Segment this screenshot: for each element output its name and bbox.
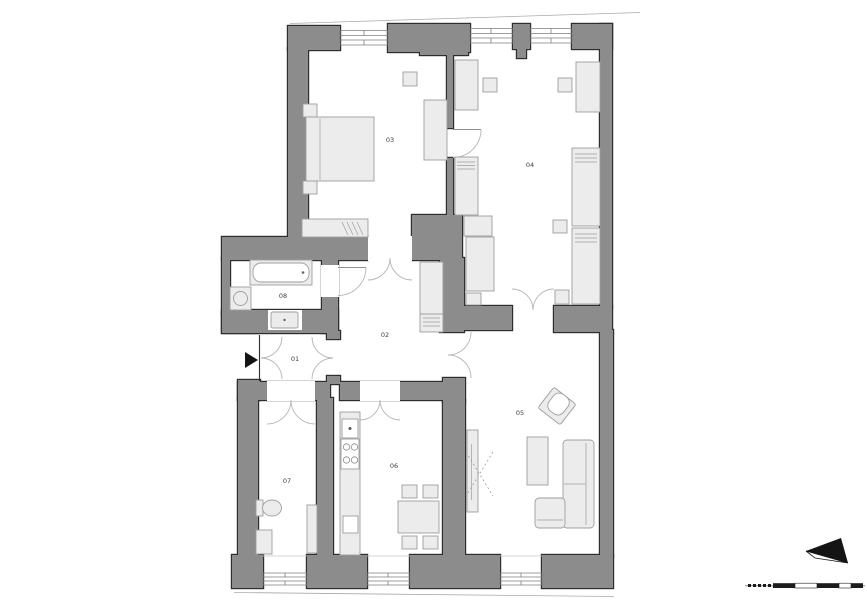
- room07-fixtures: [256, 500, 317, 554]
- door-hall02-kitchen06: [360, 400, 400, 420]
- nightstand: [303, 181, 317, 194]
- living05-furniture: [466, 387, 594, 528]
- north-arrow-icon: [806, 538, 848, 563]
- stool: [466, 293, 481, 305]
- chair: [423, 485, 438, 498]
- stool: [403, 72, 417, 86]
- floor-plan-page: 01 02 03 04 05 06 07 08: [0, 0, 867, 613]
- chair: [423, 536, 438, 549]
- entrance-arrow-icon: [245, 352, 258, 368]
- window-room06-bottom: [367, 556, 410, 585]
- sofa-section-horizontal: [535, 498, 565, 528]
- cabinet: [420, 262, 443, 314]
- wardrobe: [576, 62, 600, 112]
- toilet-tank: [256, 500, 263, 516]
- stool: [558, 78, 572, 92]
- floor-plan-drawing: 01 02 03 04 05 06 07 08: [0, 0, 867, 613]
- wardrobe: [455, 60, 478, 110]
- stool: [553, 220, 567, 233]
- room-label-02: 02: [381, 331, 389, 339]
- window-room04-top-right: [530, 29, 572, 44]
- single-bed: [572, 228, 600, 304]
- scale-bar: [745, 583, 865, 588]
- room-label-03: 03: [386, 136, 394, 144]
- window-room07-bottom: [263, 556, 307, 585]
- radiator-bench: [302, 219, 368, 237]
- window-room04-top-left: [470, 29, 513, 44]
- sink-drain: [283, 319, 285, 321]
- kitchen06-fixtures: [340, 412, 439, 555]
- bathtub-drain: [302, 271, 305, 274]
- room-label-07: 07: [283, 477, 291, 485]
- bathtub-basin: [253, 263, 309, 282]
- door-room03-hall02: [368, 258, 412, 280]
- wardrobe: [424, 100, 447, 160]
- chair: [402, 485, 417, 498]
- toilet-bowl: [263, 500, 282, 516]
- window-room05-bottom: [500, 556, 542, 585]
- double-bed: [306, 117, 374, 181]
- kitchen-sink: [343, 516, 358, 533]
- stool: [555, 290, 569, 304]
- door-hall01-room07: [267, 400, 315, 424]
- door-hall02-living05: [448, 332, 471, 378]
- radiator: [420, 314, 443, 332]
- room-label-04: 04: [526, 161, 534, 169]
- stove: [341, 439, 359, 469]
- room-label-08: 08: [279, 292, 287, 300]
- single-bed: [572, 148, 600, 226]
- door-hall01-hall02: [312, 337, 333, 379]
- room-label-01: 01: [291, 355, 299, 363]
- dining-table: [398, 501, 439, 533]
- door-room04-living05: [512, 289, 554, 310]
- armchair: [538, 387, 576, 425]
- coffee-table: [527, 437, 548, 485]
- door-entrance: [260, 335, 283, 381]
- cabinet: [307, 505, 317, 553]
- room-label-06: 06: [390, 462, 398, 470]
- nightstand: [303, 104, 317, 117]
- cabinet: [256, 530, 272, 554]
- chair: [402, 536, 417, 549]
- appliance-knob: [349, 427, 352, 430]
- shelf: [464, 216, 492, 236]
- stool: [483, 78, 497, 92]
- wardrobe: [466, 237, 494, 291]
- door-bathroom08-hall02: [338, 268, 366, 296]
- hall02-furniture: [420, 262, 443, 332]
- tv-sideboard: [467, 430, 478, 512]
- door-room03-room04: [453, 130, 481, 158]
- room03-furniture: [302, 72, 447, 237]
- window-room03-top: [340, 31, 388, 46]
- room04-furniture: [455, 60, 600, 305]
- room-label-05: 05: [516, 409, 524, 417]
